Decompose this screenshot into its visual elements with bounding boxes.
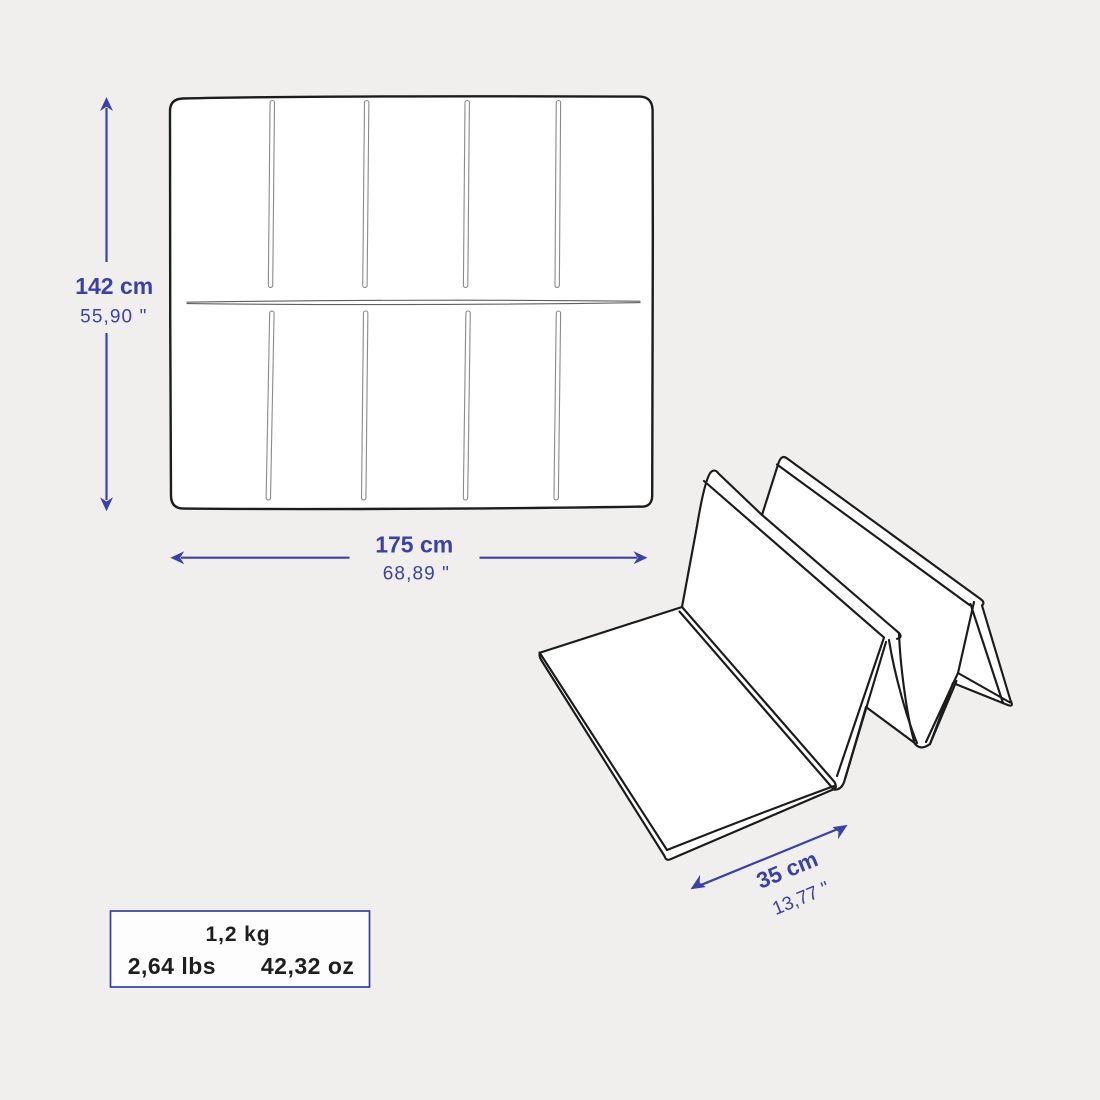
svg-text:55,90 ": 55,90 " xyxy=(80,306,147,327)
svg-text:1,2 kg: 1,2 kg xyxy=(206,923,271,946)
svg-text:142 cm: 142 cm xyxy=(75,273,153,299)
svg-text:42,32 oz: 42,32 oz xyxy=(261,953,355,979)
svg-text:175 cm: 175 cm xyxy=(375,532,453,558)
svg-text:2,64 lbs: 2,64 lbs xyxy=(128,953,216,979)
svg-text:68,89 ": 68,89 " xyxy=(383,564,450,585)
